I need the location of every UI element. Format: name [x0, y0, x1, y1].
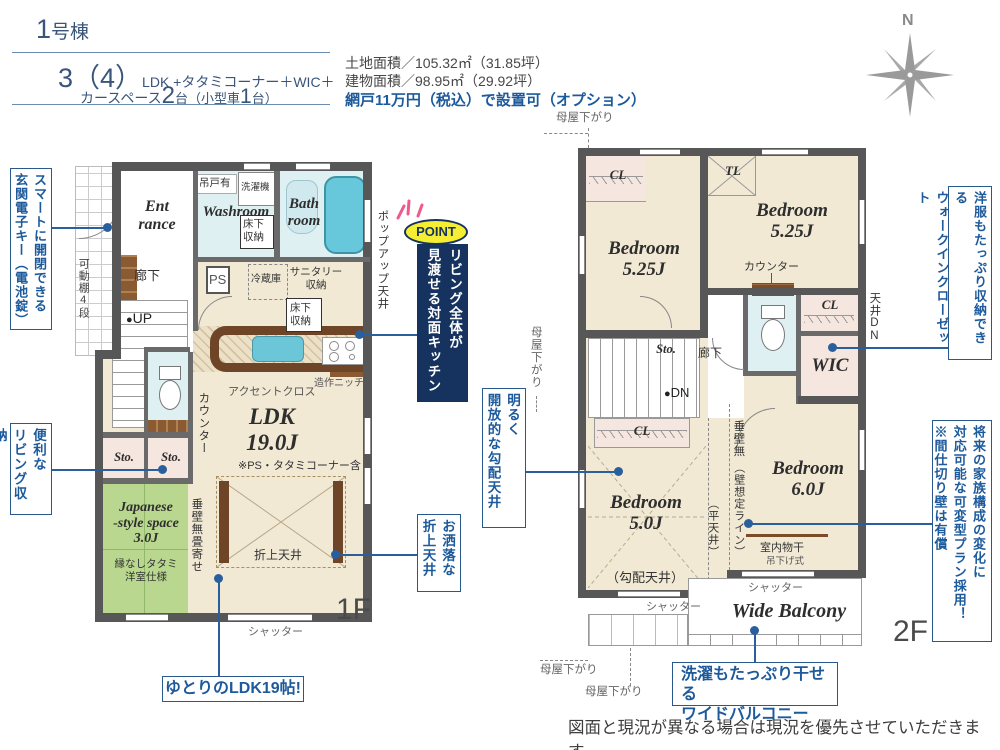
window	[126, 614, 168, 621]
wall	[103, 478, 193, 484]
f2-balcony-left	[588, 614, 688, 646]
f2-shutter2-label: シャッター	[646, 601, 701, 614]
f1-tarekabe-label: 垂壁無畳寄せ	[189, 498, 203, 573]
moya2-line	[536, 396, 537, 412]
wall	[95, 350, 103, 622]
callout-line	[526, 471, 618, 473]
wall	[801, 331, 858, 336]
moya1-line-v	[588, 128, 589, 148]
window	[640, 149, 680, 155]
f2-wall-line-label: （壁想定ライン）	[731, 462, 745, 558]
moya4-line	[630, 648, 631, 686]
building-suffix: 号棟	[51, 22, 89, 43]
f2-cl2-rod	[804, 315, 854, 323]
f1-hallway-label: 廊下	[134, 268, 160, 284]
f2-balcony-label: Wide Balcony	[716, 600, 862, 622]
f1-up-label: ●UP	[126, 310, 152, 328]
f2-bedroom3-label: Bedroom 5.0J	[596, 492, 696, 535]
header-divider-2	[12, 104, 330, 105]
f1-ps-label: PS	[209, 272, 226, 288]
annotation-ldk19: ゆとりのLDK19帖!	[162, 676, 304, 702]
f2-drying-label: 室内物干	[760, 542, 804, 556]
window	[296, 163, 330, 170]
f1-coffered-bar-left	[219, 481, 229, 563]
f1-bathtub	[324, 176, 366, 254]
f1-washer-label: 洗濯機	[241, 182, 270, 194]
f1-hanging-cupboard-label: 吊戸有	[199, 177, 231, 190]
f2-cl1-label: CL	[598, 168, 638, 183]
callout-line	[754, 634, 756, 662]
f1-ldk-label: LDK 19.0J	[228, 404, 316, 456]
window	[364, 418, 371, 454]
wall	[796, 295, 801, 404]
f1-fridge-label: 冷蔵庫	[251, 274, 281, 287]
wall	[798, 396, 866, 404]
f1-sto2-label: Sto.	[150, 450, 192, 464]
f1-coffered-label: 折上天井	[254, 548, 302, 563]
f2-cl2-label: CL	[810, 298, 850, 313]
callout-dot	[750, 626, 759, 635]
screen-option-note: 網戸11万円（税込）で設置可（オプション）	[345, 89, 646, 110]
compass: N	[862, 12, 958, 118]
annotation-sloped-ceiling: 明るく 開放的な勾配天井	[482, 388, 526, 528]
f1-japanese-note: 縁なしタタミ 洋室仕様	[110, 558, 182, 584]
f2-bedroom3-note: （勾配天井）	[606, 570, 684, 586]
window	[579, 470, 585, 508]
f1-shutter-label: シャッター	[248, 626, 303, 639]
moya1-line	[544, 133, 588, 134]
callout-dot	[744, 519, 753, 528]
window	[579, 236, 585, 274]
f2-balcony-rail	[688, 634, 862, 646]
f1-toilet-counter	[148, 420, 190, 432]
f1-bathroom-label: Bath room	[282, 196, 326, 230]
wall	[578, 330, 708, 338]
f1-ldk-note: ※PS・タタミコーナー含	[238, 460, 361, 474]
f2-hallway-label: 廊下	[698, 346, 722, 361]
f2-moya4-label: 母屋下がり	[585, 686, 643, 700]
f1-popup-ceiling-label: ポップアップ天井	[375, 210, 389, 310]
f1-entrance-label: Ent rance	[123, 198, 191, 234]
wall	[144, 438, 148, 478]
callout-dot	[158, 465, 167, 474]
wall	[144, 352, 148, 438]
f1-niche-label: 造作ニッチ	[314, 378, 364, 390]
moya3-line	[540, 660, 588, 661]
dn-dot: ●	[664, 388, 671, 400]
f2-sto-label: Sto.	[646, 342, 686, 356]
wall	[103, 432, 193, 438]
f1-niche-strip	[330, 372, 366, 377]
f1-accent-label: アクセントクロス	[228, 386, 315, 399]
f1-floor-label: 1F	[336, 592, 371, 628]
f2-cl3-label: CL	[622, 424, 662, 439]
callout-line	[52, 227, 107, 229]
window	[762, 149, 808, 155]
callout-dot	[214, 574, 223, 583]
f1-sanitary-label: サニタリー 収納	[288, 266, 344, 292]
annotation-coffered: お洒落な 折上天井	[417, 514, 461, 592]
f2-bedroom1-label: Bedroom 5.25J	[596, 238, 692, 281]
up-dot: ●	[126, 314, 133, 326]
point-badge: POINT	[404, 219, 468, 245]
wall	[578, 148, 586, 598]
f2-tl-label: TL	[718, 164, 748, 179]
annotation-wic: 洋服もたっぷり収納できる ウォークインクローゼット	[948, 186, 992, 360]
wall	[193, 171, 198, 331]
f1-toilet-tank	[159, 366, 181, 380]
callout-line	[752, 523, 932, 525]
callout-dot	[331, 550, 340, 559]
header-divider-1	[12, 52, 330, 53]
callout-line	[218, 582, 220, 676]
f2-counter-pointer	[771, 273, 772, 283]
f1-movable-shelf-label: 可動棚4段	[76, 258, 89, 319]
plan-type-line2: カースペース2台（小型車1台）	[80, 82, 278, 110]
f1-japanese-label: Japanese -style space 3.0J	[104, 500, 188, 547]
f1-sto1-label: Sto.	[104, 450, 144, 464]
f2-moya2-label: 母屋下がり	[528, 326, 542, 389]
f2-ceiling-dn-label: 天井DN	[867, 292, 881, 343]
wall	[193, 257, 370, 262]
f1-kitchen-sink	[252, 336, 304, 362]
f1-underfloor1-label: 床下 収納	[243, 218, 264, 244]
f1-counter-label: カウンター	[196, 392, 210, 455]
callout-line	[836, 347, 948, 349]
f1-washroom-label: Washroom	[196, 204, 276, 221]
compass-north-label: N	[902, 12, 914, 30]
callout-dot	[614, 467, 623, 476]
stove-burners-icon	[323, 338, 363, 364]
building-title: 1号棟	[36, 14, 89, 45]
f2-drying-type-label: 吊下げ式	[766, 556, 804, 567]
wall	[578, 148, 866, 156]
annotation-point-kitchen: リビング全体が 見渡せる対面キッチン	[417, 244, 468, 402]
callout-dot	[828, 343, 837, 352]
f2-bedroom4-label: Bedroom 6.0J	[758, 458, 858, 501]
building-area: 建物面積／98.95㎡（29.92坪）	[345, 71, 541, 91]
annotation-entry-key: スマートに開閉できる 玄関電子キー（電池錠）	[10, 168, 52, 330]
wall	[700, 156, 708, 338]
window	[244, 163, 270, 170]
building-number: 1	[36, 14, 51, 44]
window	[364, 468, 371, 504]
f1-underfloor2-label: 床下 収納	[290, 302, 311, 328]
f2-moya3-label: 母屋下がり	[540, 664, 598, 678]
wall	[708, 288, 866, 295]
f2-bedroom2-label: Bedroom 5.25J	[742, 200, 842, 243]
annotation-living-storage: 便利な リビング収納	[10, 423, 52, 515]
f2-toilet-bowl	[761, 319, 785, 351]
wall	[743, 371, 801, 376]
callout-dot	[103, 223, 112, 232]
compass-icon	[862, 32, 958, 118]
f2-moya1-label: 母屋下がり	[556, 112, 614, 126]
land-area: 土地面積／105.32㎡（31.85坪）	[345, 53, 549, 73]
floorplan-page: 1号棟 3（4）LDK +タタミコーナー＋WIC＋ カースペース2台（小型車1台…	[0, 0, 1000, 750]
f2-drying-bar	[746, 534, 828, 537]
f1-stove	[322, 337, 364, 365]
callout-line	[362, 334, 418, 336]
f2-floor-label: 2F	[893, 614, 928, 650]
callout-line	[52, 469, 162, 471]
window	[859, 430, 865, 470]
f2-dn-label: ●DN	[664, 385, 689, 402]
f1-toilet-bowl	[159, 380, 181, 410]
window	[364, 200, 371, 242]
f2-toilet-tank	[761, 305, 785, 319]
f2-flat-ceiling-label: （平天井）	[705, 498, 719, 558]
callout-line	[338, 554, 417, 556]
wall	[144, 347, 190, 352]
window	[859, 200, 865, 244]
footer-disclaimer: 図面と現況が異なる場合は現況を優先させていただきます。	[568, 714, 1000, 750]
f2-assumed-wall-line	[729, 404, 730, 570]
f2-tarekabe-label: 垂壁無	[731, 420, 745, 458]
callout-dot	[355, 330, 364, 339]
window-shutter	[742, 571, 814, 577]
window-shutter	[228, 614, 312, 621]
window-shutter	[618, 591, 680, 597]
annotation-balcony: 洗濯もたっぷり干せる ワイドバルコニー	[672, 662, 838, 706]
wall	[112, 162, 121, 358]
f2-wic-label: WIC	[806, 355, 854, 376]
annotation-flexible-plan: 将来の家族構成の変化に 対応可能な可変型プラン採用！ ※間仕切り壁は有償	[932, 420, 992, 642]
f2-shutter1-label: シャッター	[748, 582, 803, 595]
